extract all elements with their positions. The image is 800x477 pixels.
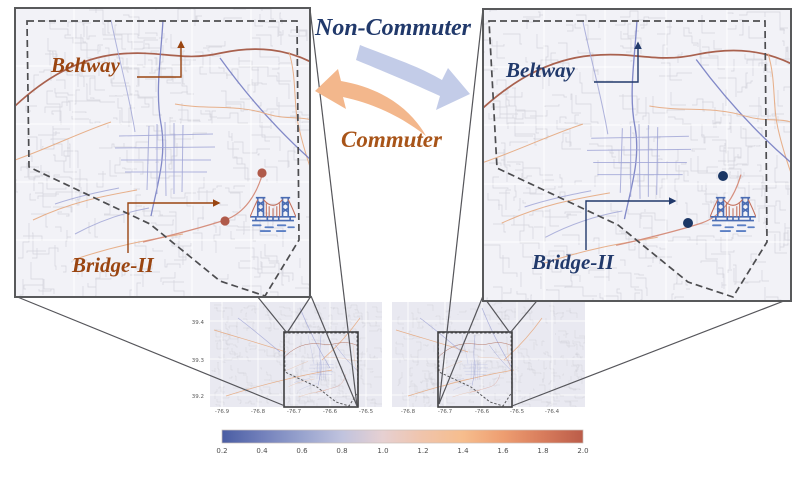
bridge-label-right: Bridge-II (532, 252, 614, 273)
x-tick: -76.9 (213, 410, 231, 416)
bridge-label-left: Bridge-II (72, 255, 154, 276)
colorbar-tick: 0.2 (213, 448, 231, 455)
x-tick: -76.6 (473, 410, 491, 416)
colorbar-tick: 1.6 (494, 448, 512, 455)
x-tick: -76.5 (508, 410, 526, 416)
overview-map-right (392, 302, 589, 419)
bridge-marker-dot (257, 168, 266, 177)
x-tick: -76.6 (321, 410, 339, 416)
bridge-marker-dot (718, 171, 728, 181)
non-commuter-label: Non-Commuter (315, 16, 471, 40)
x-tick: -76.4 (543, 410, 561, 416)
colorbar (222, 430, 583, 443)
figure-canvas: Non-Commuter Commuter Beltway Bridge-II … (0, 0, 800, 477)
colorbar-tick: 1.8 (534, 448, 552, 455)
colorbar-tick: 0.4 (253, 448, 271, 455)
beltway-label-right: Beltway (506, 60, 575, 81)
overview-map-left (210, 302, 388, 420)
x-tick: -76.7 (285, 410, 303, 416)
figure-graphics (0, 0, 800, 477)
x-tick: -76.5 (357, 410, 375, 416)
colorbar-tick: 2.0 (574, 448, 592, 455)
bridge-marker-dot (220, 216, 229, 225)
x-tick: -76.7 (436, 410, 454, 416)
y-tick: 39.2 (188, 395, 204, 401)
x-tick: -76.8 (399, 410, 417, 416)
map-panel-commuter (12, 2, 347, 316)
colorbar-tick: 1.2 (414, 448, 432, 455)
x-tick: -76.8 (249, 410, 267, 416)
colorbar-tick: 0.6 (293, 448, 311, 455)
colorbar-tick: 1.4 (454, 448, 472, 455)
y-tick: 39.3 (188, 359, 204, 365)
beltway-label-left: Beltway (51, 55, 120, 76)
commuter-label: Commuter (341, 128, 442, 151)
y-tick: 39.4 (188, 321, 204, 327)
bridge-marker-dot (683, 218, 693, 228)
colorbar-tick: 1.0 (374, 448, 392, 455)
colorbar-tick: 0.8 (333, 448, 351, 455)
